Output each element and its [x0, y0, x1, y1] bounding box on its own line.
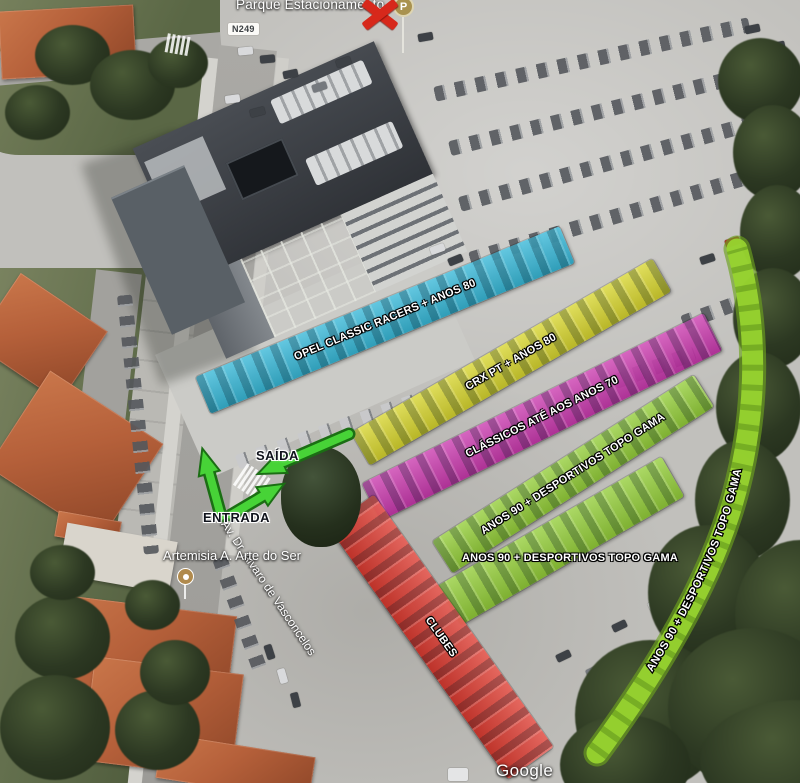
google-watermark[interactable]: Google: [496, 761, 553, 781]
poi-pin-icon[interactable]: [177, 568, 194, 585]
tree: [0, 675, 110, 780]
exit-label: SAÍDA: [256, 448, 299, 463]
tree: [125, 580, 180, 630]
zone-label: ANOS 90 + DESPORTIVOS TOPO GAMA: [462, 552, 678, 564]
car: [238, 46, 254, 55]
tree: [140, 640, 210, 705]
poi-label[interactable]: Artemisia A. Arte do Ser: [163, 548, 301, 563]
poi-pin-stem: [184, 584, 186, 599]
car: [260, 54, 276, 63]
roof-hvac: [305, 121, 404, 186]
satellite-map[interactable]: ANOS 90 + DESPORTIVOS TOPO GAMA OPEL CLA…: [0, 0, 800, 783]
road-shield-n249: N249: [227, 22, 260, 36]
poi-pin-dot: [183, 574, 189, 580]
van: [448, 768, 468, 781]
tree: [15, 595, 110, 680]
tree: [5, 85, 70, 140]
tree: [30, 545, 95, 600]
tree: [148, 38, 208, 88]
parking-marker-stem: [402, 17, 404, 53]
roof-hvac: [270, 59, 372, 124]
roof-skylight: [226, 138, 300, 201]
entrance-label: ENTRADA: [203, 510, 270, 525]
